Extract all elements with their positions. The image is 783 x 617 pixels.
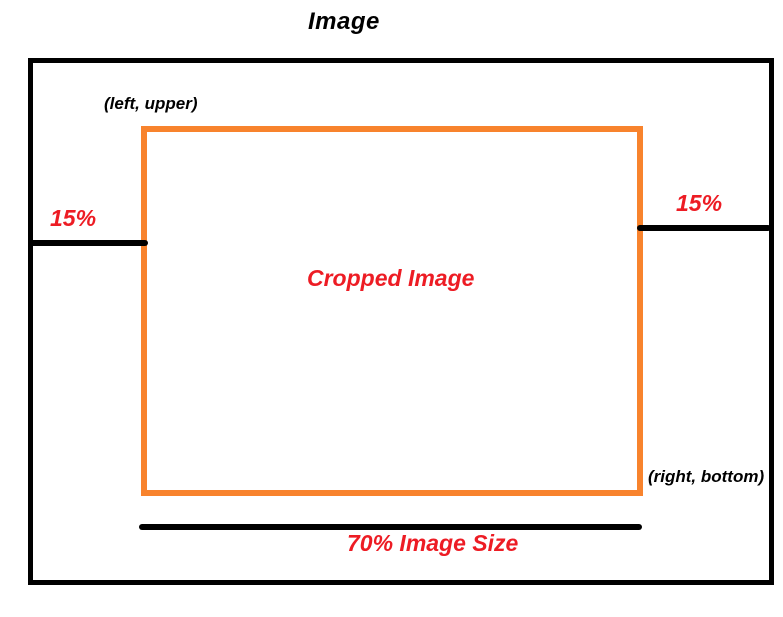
right-margin-line (637, 225, 771, 231)
left-margin-line (30, 240, 148, 246)
crop-diagram: Image (left, upper) (right, bottom) Crop… (0, 0, 783, 617)
diagram-title: Image (308, 8, 380, 36)
bottom-size-label: 70% Image Size (347, 530, 518, 557)
crop-boundary-box (141, 126, 643, 496)
right-margin-percent-label: 15% (676, 190, 722, 217)
cropped-image-label: Cropped Image (307, 265, 474, 292)
left-margin-percent-label: 15% (50, 205, 96, 232)
corner-label-left-upper: (left, upper) (104, 94, 198, 114)
corner-label-right-bottom: (right, bottom) (648, 467, 764, 487)
